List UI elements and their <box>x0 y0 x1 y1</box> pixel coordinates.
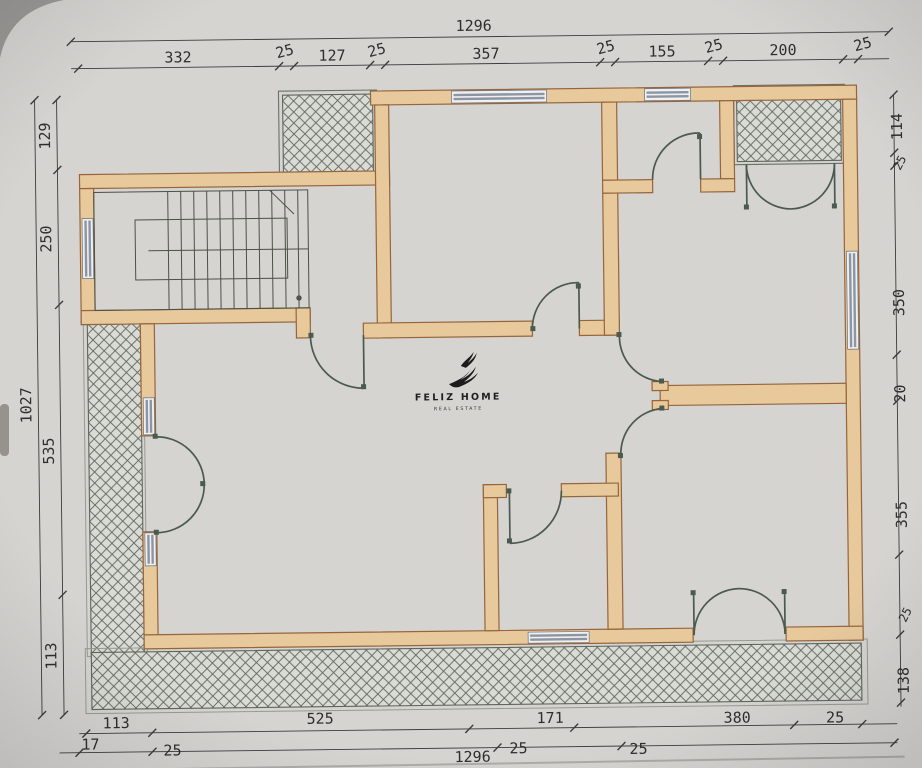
photo-artifacts <box>0 0 922 768</box>
floorplan-drawing: 1296 332 25 127 25 357 25 155 25 200 25 … <box>0 0 922 768</box>
vignette <box>0 0 922 768</box>
floorplan-photo: 1296 332 25 127 25 357 25 155 25 200 25 … <box>0 0 922 768</box>
